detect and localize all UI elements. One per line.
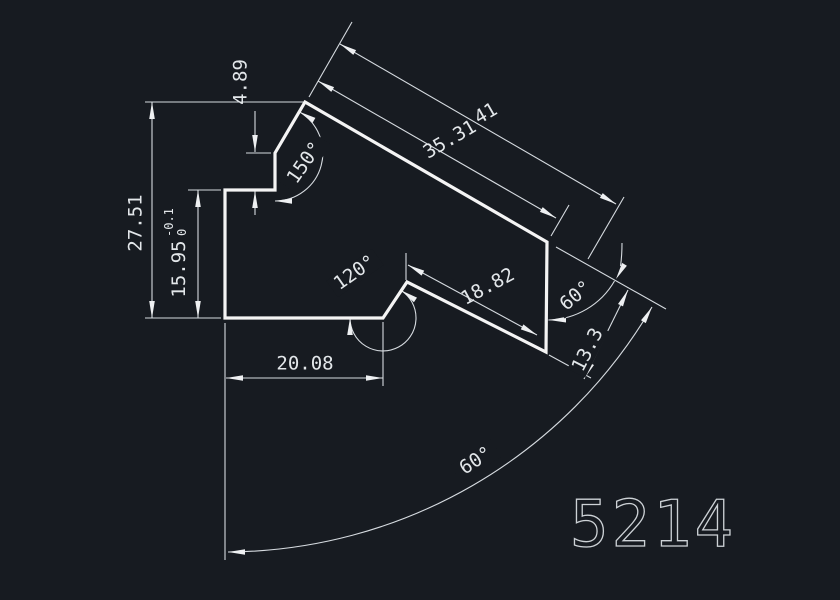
dim-step-height-label: 4.89 (230, 59, 252, 105)
dim-bottom-width-label: 20.08 (276, 353, 333, 375)
dim-total-height: 27.51 (125, 194, 147, 251)
dim-bottom-width: 20.08 (276, 353, 333, 375)
cad-drawing-canvas[interactable]: 4.89 27.51 15.95 -0.1 0 150° 35.31 41 12… (0, 0, 840, 600)
dim-total-height-label: 27.51 (125, 194, 147, 251)
dim-left-height-label: 15.95 (168, 240, 190, 297)
dim-left-height-tol-top: -0.1 (162, 208, 176, 237)
part-number-label: 5214 (570, 488, 736, 562)
dim-step-height: 4.89 (230, 59, 252, 105)
dim-left-height-tol-bottom: 0 (175, 229, 189, 236)
